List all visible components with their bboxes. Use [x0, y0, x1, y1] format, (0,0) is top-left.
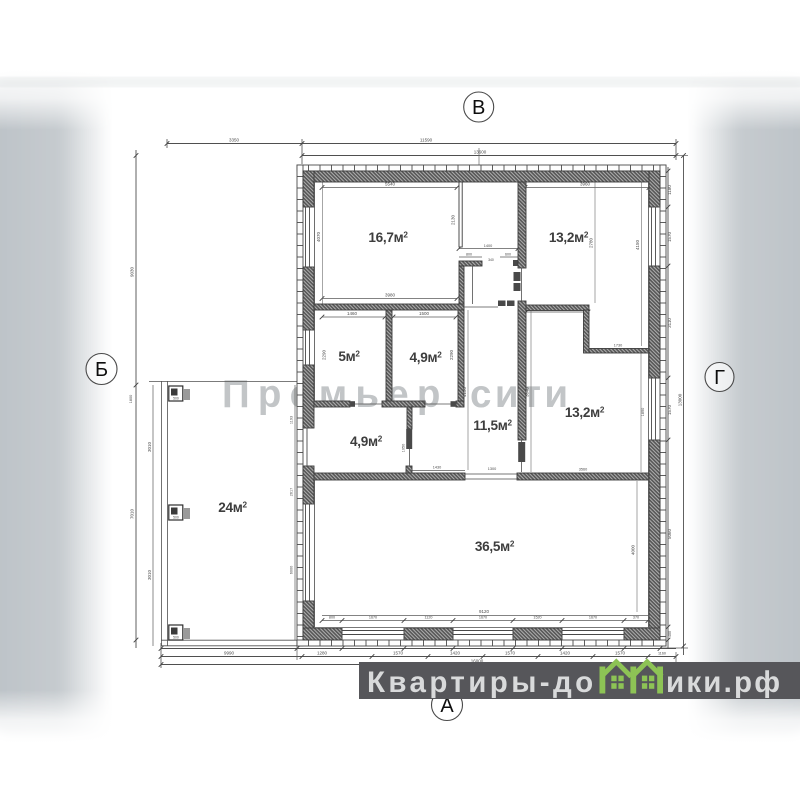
svg-text:2130: 2130 [451, 214, 456, 225]
svg-text:1500: 1500 [419, 311, 430, 316]
svg-text:1050: 1050 [402, 444, 406, 452]
svg-text:500: 500 [173, 397, 179, 401]
svg-text:400: 400 [668, 631, 672, 637]
svg-text:3110: 3110 [667, 318, 672, 328]
svg-text:9990: 9990 [224, 651, 235, 656]
svg-text:1193: 1193 [290, 416, 294, 424]
svg-text:1670: 1670 [369, 616, 377, 620]
svg-text:1570: 1570 [667, 404, 672, 415]
svg-text:1460: 1460 [347, 311, 358, 316]
svg-text:7010: 7010 [130, 508, 135, 519]
svg-text:370: 370 [633, 616, 639, 620]
svg-text:Б: Б [95, 359, 108, 381]
svg-text:11590: 11590 [420, 138, 433, 143]
svg-text:11,5м2: 11,5м2 [473, 418, 512, 433]
svg-text:1420: 1420 [450, 651, 461, 656]
svg-text:500: 500 [173, 636, 179, 640]
svg-text:Г: Г [714, 367, 725, 389]
svg-text:13,2м2: 13,2м2 [549, 230, 589, 245]
svg-text:16,7м2: 16,7м2 [368, 230, 408, 245]
svg-text:1800: 1800 [129, 395, 133, 403]
svg-text:3560: 3560 [579, 468, 587, 472]
svg-text:800: 800 [329, 616, 335, 620]
svg-text:2290: 2290 [449, 349, 454, 360]
svg-text:6000: 6000 [290, 566, 294, 574]
svg-text:4150: 4150 [635, 239, 640, 250]
svg-text:1670: 1670 [479, 616, 487, 620]
svg-text:600: 600 [505, 253, 511, 257]
svg-text:9120: 9120 [479, 609, 490, 614]
svg-text:1160: 1160 [658, 652, 666, 656]
svg-text:1280: 1280 [317, 651, 328, 656]
svg-text:1570: 1570 [615, 651, 626, 656]
svg-text:1570: 1570 [393, 651, 404, 656]
svg-text:3980: 3980 [385, 293, 396, 298]
svg-text:800: 800 [466, 253, 472, 257]
svg-text:Премьер: Премьер [222, 373, 449, 416]
svg-text:2290: 2290 [322, 349, 327, 360]
svg-text:9030: 9030 [130, 266, 135, 277]
svg-text:1430: 1430 [433, 466, 441, 470]
svg-text:4070: 4070 [316, 231, 321, 242]
svg-text:13000: 13000 [678, 393, 683, 406]
svg-text:13600: 13600 [474, 150, 487, 155]
svg-text:ики.рф: ики.рф [666, 666, 782, 699]
svg-text:5060: 5060 [667, 528, 672, 539]
svg-text:4000: 4000 [631, 544, 636, 555]
svg-text:1730: 1730 [614, 344, 622, 348]
svg-text:2617: 2617 [290, 488, 294, 496]
svg-text:340: 340 [488, 258, 494, 262]
svg-text:1520: 1520 [533, 616, 541, 620]
svg-text:1890: 1890 [641, 408, 645, 416]
svg-text:Квартиры-до: Квартиры-до [367, 666, 597, 699]
svg-text:500: 500 [173, 516, 179, 520]
svg-text:В: В [472, 97, 485, 119]
svg-text:3350: 3350 [229, 138, 240, 143]
svg-text:1420: 1420 [560, 651, 571, 656]
svg-text:1180: 1180 [667, 185, 672, 195]
svg-text:36,5м2: 36,5м2 [475, 539, 515, 554]
svg-text:1300: 1300 [488, 467, 496, 471]
svg-text:1670: 1670 [589, 616, 597, 620]
svg-text:1570: 1570 [667, 231, 672, 242]
svg-text:1570: 1570 [505, 651, 516, 656]
svg-text:3010: 3010 [147, 441, 152, 452]
svg-text:2780: 2780 [589, 237, 594, 248]
svg-text:1400: 1400 [484, 244, 492, 248]
svg-text:13,2м2: 13,2м2 [565, 405, 605, 420]
svg-text:1120: 1120 [425, 616, 433, 620]
svg-text:3010: 3010 [147, 569, 152, 580]
